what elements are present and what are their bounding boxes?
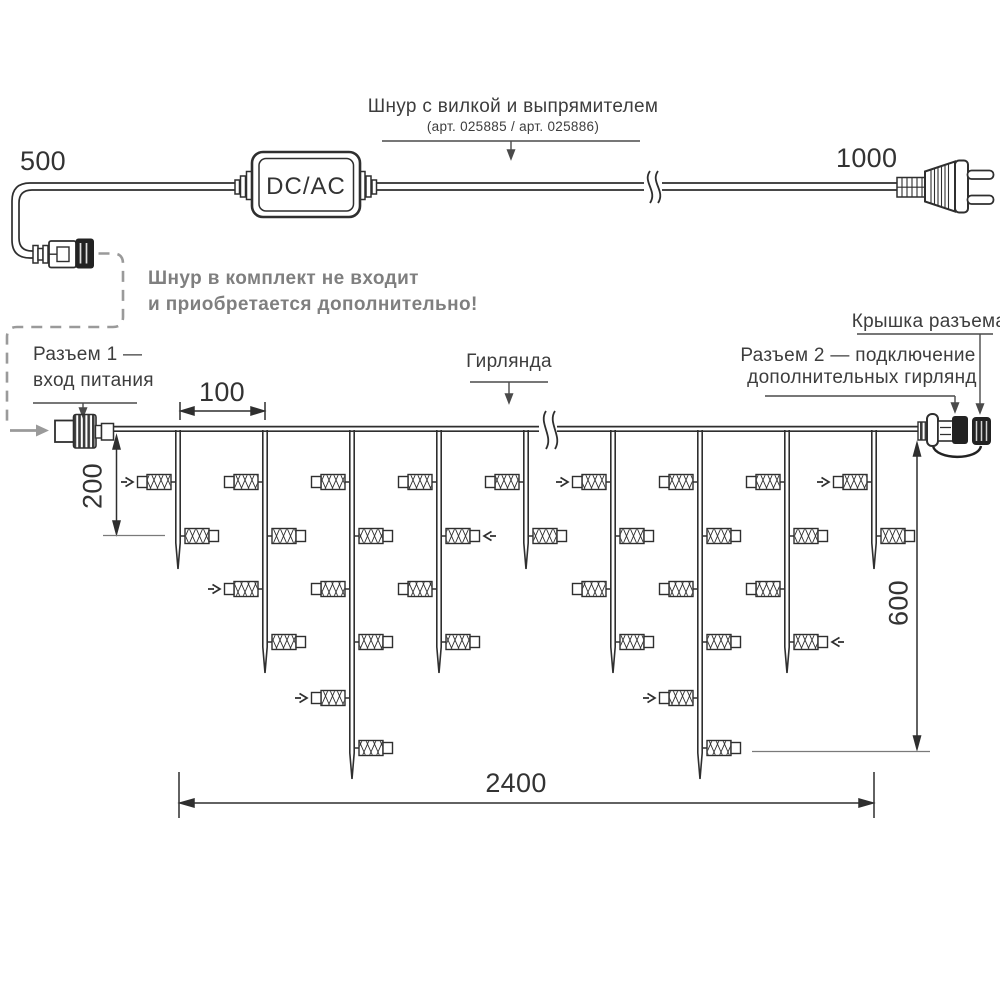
lamp-icon: [208, 582, 263, 597]
lamp-icon: [354, 529, 393, 544]
lamp-icon: [573, 582, 612, 597]
direction-arrow-icon: [643, 694, 655, 703]
lamp-icon: [354, 635, 393, 650]
lamp-icon: [528, 529, 567, 544]
lamp-icon: [354, 741, 393, 756]
icicle-drop: [817, 430, 915, 569]
icicle-drop: [556, 430, 654, 673]
icicle-drop: [121, 430, 219, 569]
lamp-icon: [295, 691, 350, 706]
dim-label-200: 200: [77, 463, 108, 509]
dim-label-600: 600: [883, 580, 914, 626]
lamp-icon: [789, 529, 828, 544]
power-cord: [12, 183, 897, 258]
dim-label-1000: 1000: [836, 143, 897, 174]
lamp-icon: [225, 475, 264, 490]
lamp-icon: [121, 475, 176, 490]
diagram-page: 500 1000 DC/AC Шнур с вилкой и выпрямите…: [0, 0, 1000, 1000]
start-connector-icon: [55, 415, 114, 449]
mains-plug-icon: [897, 161, 994, 213]
power-cord-connector-icon: [33, 239, 94, 269]
lamp-icon: [876, 529, 915, 544]
icicle-drops: [121, 430, 915, 779]
icicle-drop: [295, 430, 393, 779]
lamp-icon: [817, 475, 872, 490]
lamp-icon: [312, 475, 351, 490]
lamp-icon: [702, 529, 741, 544]
connector1-label-line1: Разъем 1 —: [33, 344, 142, 366]
direction-arrow-icon: [556, 478, 568, 487]
lamp-icon: [486, 475, 525, 490]
connector2-label-line1: Разъем 2 — подключение: [740, 345, 975, 367]
dim-label-100: 100: [199, 377, 245, 408]
dim-label-500: 500: [20, 146, 66, 177]
gray-arrow-icon: [36, 425, 49, 437]
lamp-icon: [643, 691, 698, 706]
lamp-icon: [789, 635, 844, 650]
icicle-drop: [643, 430, 741, 779]
direction-arrow-icon: [832, 638, 844, 647]
note-line1: Шнур в комплект не входит: [148, 268, 419, 290]
lamp-icon: [312, 582, 351, 597]
end-connector-icon: [918, 414, 991, 457]
lamp-icon: [399, 475, 438, 490]
cap-tether: [933, 446, 981, 457]
lamp-icon: [441, 635, 480, 650]
garland-label: Гирлянда: [466, 351, 552, 373]
lamp-icon: [702, 635, 741, 650]
lamp-icon: [615, 635, 654, 650]
cap-label: Крышка разъема: [852, 311, 1000, 333]
direction-arrow-icon: [121, 478, 133, 487]
lamp-icon: [660, 582, 699, 597]
lamp-icon: [615, 529, 654, 544]
lamp-icon: [441, 529, 496, 544]
garland-break-icon: [539, 411, 557, 449]
lamp-icon: [660, 475, 699, 490]
lamp-icon: [747, 475, 786, 490]
cord-break-icon: [644, 171, 662, 203]
direction-arrow-icon: [208, 585, 220, 594]
note-line2: и приобретается дополнительно!: [148, 294, 478, 316]
lamp-icon: [180, 529, 219, 544]
connector1-label-line2: вход питания: [33, 370, 154, 392]
icicle-drop: [399, 430, 497, 673]
icicle-drop: [747, 430, 845, 673]
lamp-icon: [399, 582, 438, 597]
lamp-icon: [556, 475, 611, 490]
connector-cap-icon: [972, 417, 991, 445]
lamp-icon: [747, 582, 786, 597]
lamp-icon: [267, 529, 306, 544]
direction-arrow-icon: [817, 478, 829, 487]
cord-title: Шнур с вилкой и выпрямителем: [368, 96, 658, 118]
lamp-icon: [702, 741, 741, 756]
direction-arrow-icon: [484, 532, 496, 541]
direction-arrow-icon: [295, 694, 307, 703]
icicle-drop: [208, 430, 306, 673]
converter-label: DC/AC: [266, 173, 346, 201]
cord-subtitle: (арт. 025885 / арт. 025886): [427, 119, 599, 135]
icicle-drop: [486, 430, 567, 569]
connector2-label-line2: дополнительных гирлянд: [747, 367, 977, 389]
garland-main-line: [114, 427, 918, 432]
dim-label-2400: 2400: [485, 768, 546, 799]
lamp-icon: [267, 635, 306, 650]
